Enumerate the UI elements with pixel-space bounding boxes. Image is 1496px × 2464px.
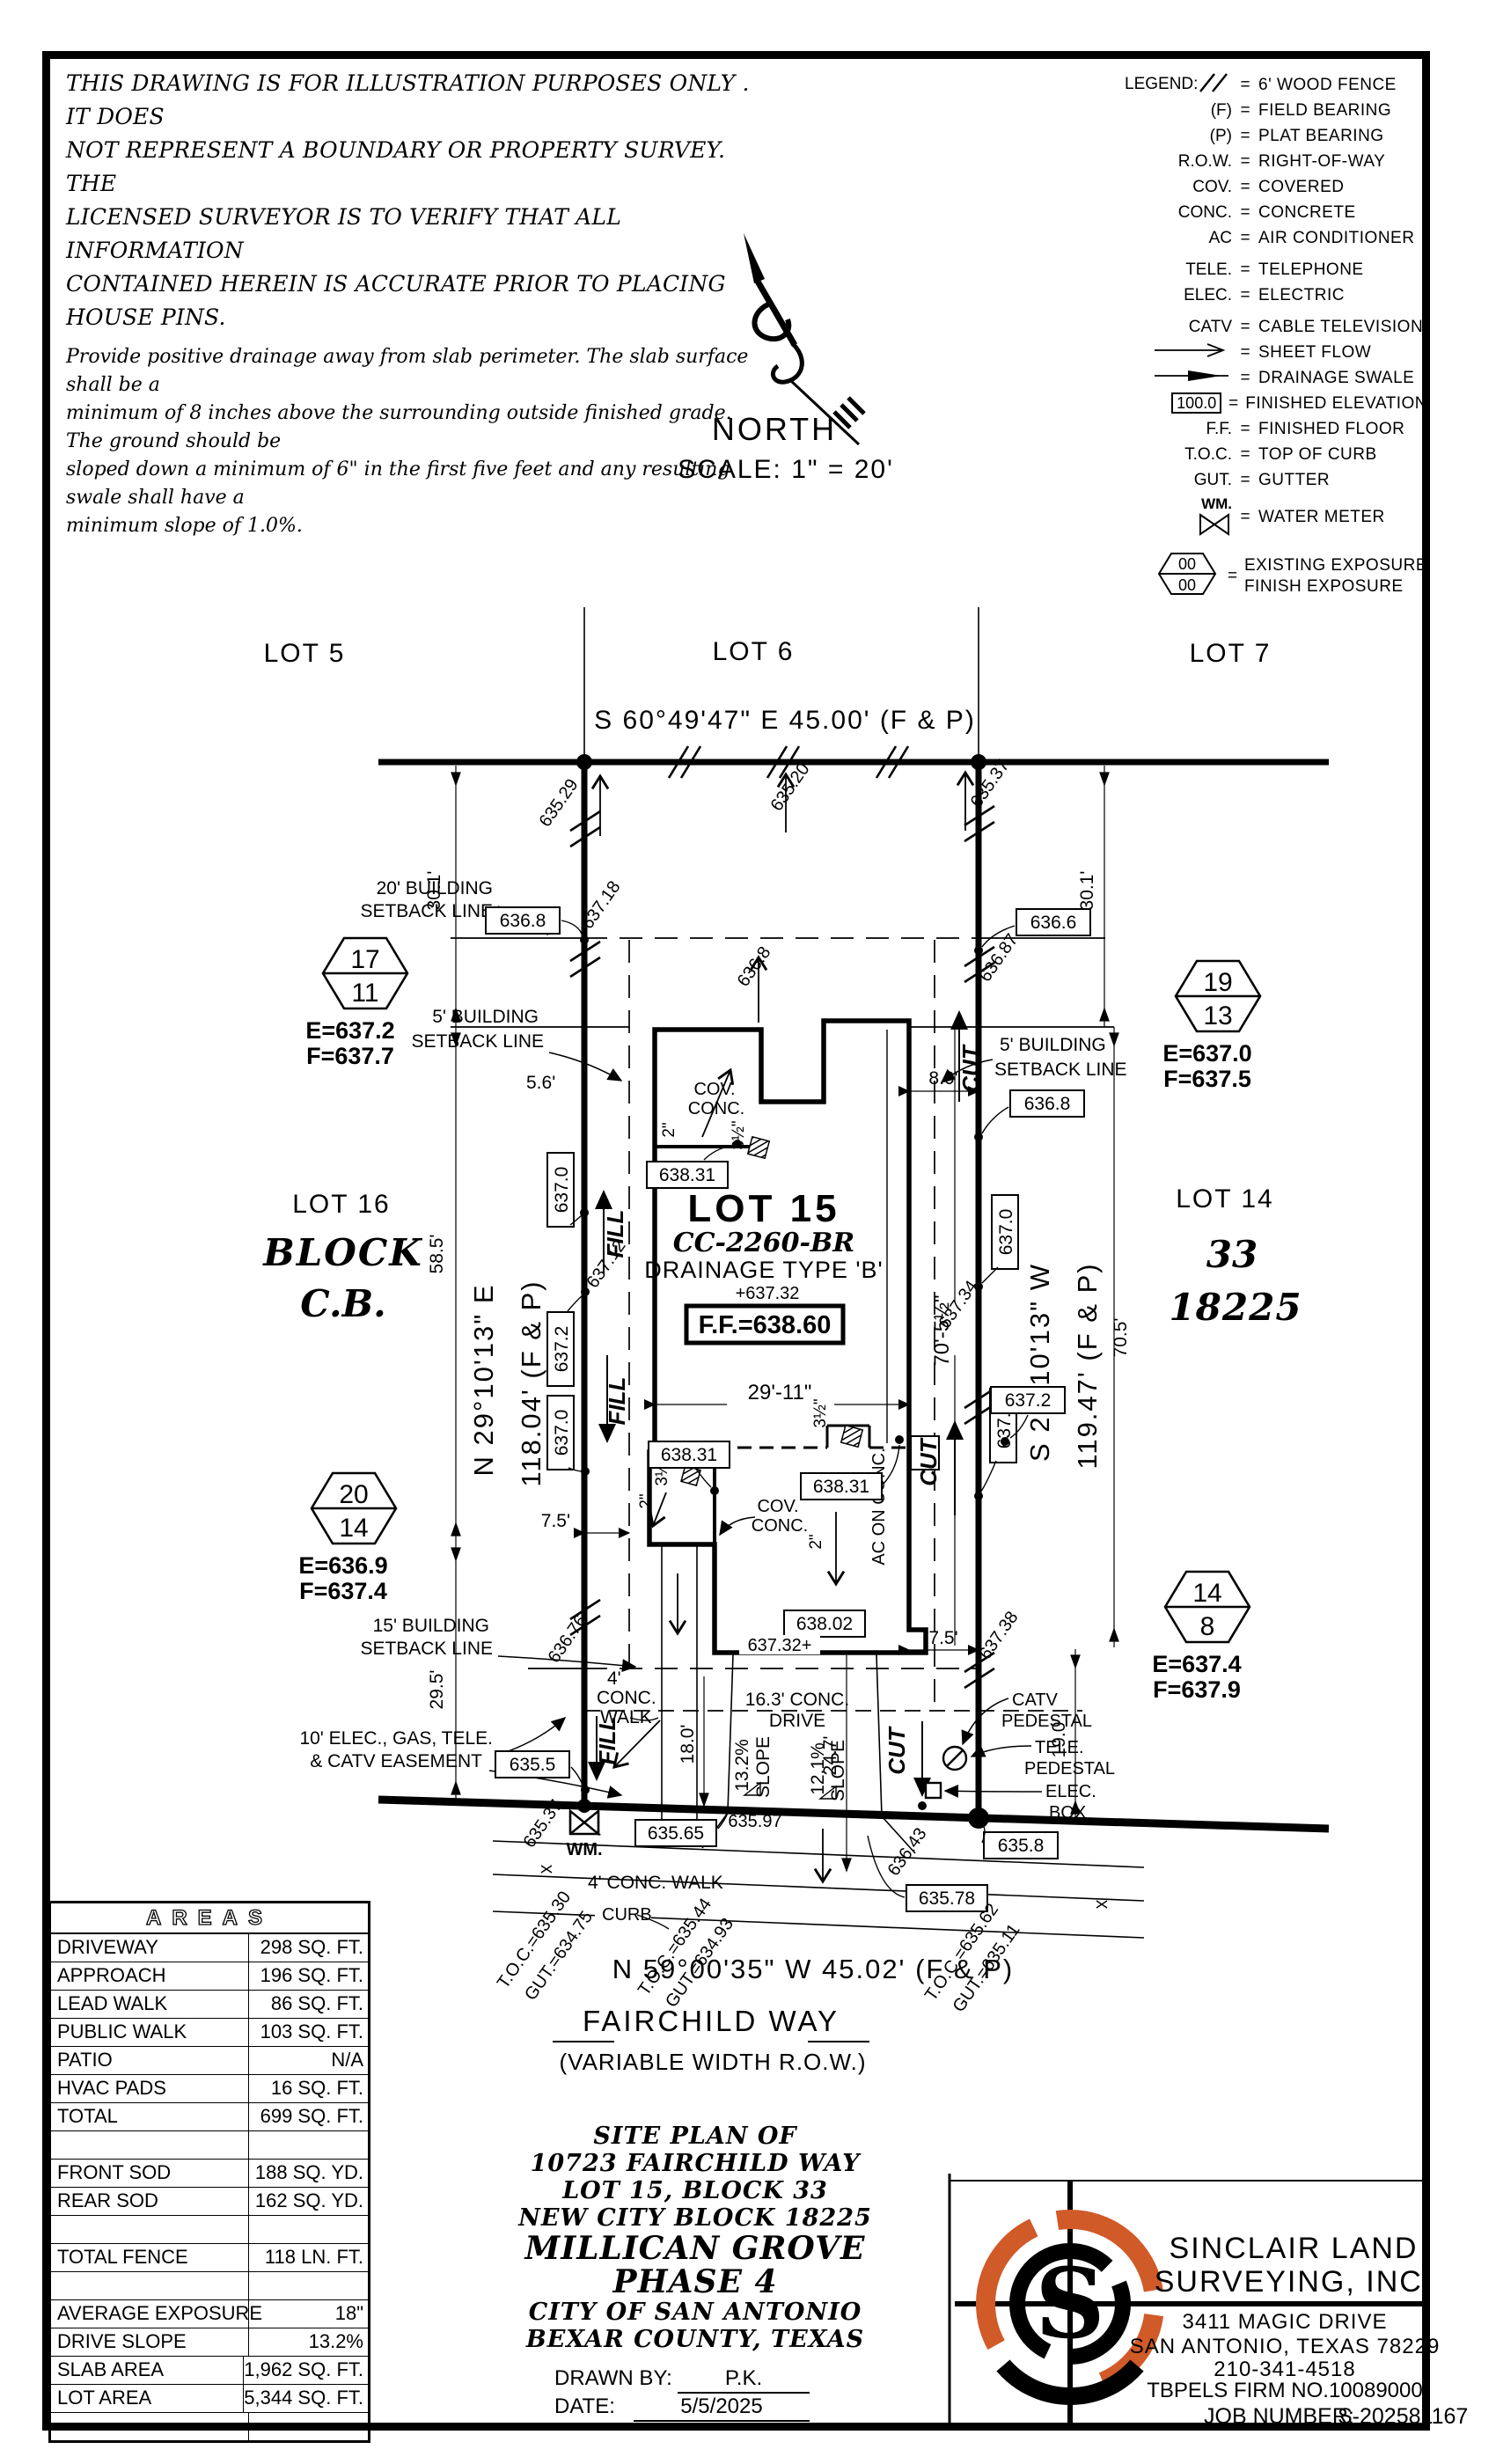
svg-text:58.5': 58.5' [427, 1235, 447, 1274]
svg-text:638.02: 638.02 [796, 1614, 853, 1634]
svg-text:637.0: 637.0 [552, 1167, 572, 1214]
svg-text:S 29°10'13" W: S 29°10'13" W [1024, 1263, 1055, 1462]
svg-text:SETBACK LINE: SETBACK LINE [994, 1060, 1127, 1080]
svg-text:30.1': 30.1' [1077, 871, 1097, 911]
svg-text:00: 00 [1178, 576, 1196, 594]
svg-text:C.B.: C.B. [300, 1282, 385, 1325]
company-addr-2: SAN ANTONIO, TEXAS 78229 [1130, 2335, 1441, 2358]
svg-text:PEDESTAL: PEDESTAL [1024, 1759, 1115, 1778]
title-line: NEW CITY BLOCK 18225 [488, 2204, 902, 2232]
legend: LEGEND: =6' WOOD FENCE (F)=FIELD BEARING… [1128, 72, 1427, 605]
svg-text:& CATV EASEMENT: & CATV EASEMENT [310, 1751, 482, 1771]
hex-14-8: 148 E=637.4 F=637.9 [1152, 1572, 1250, 1703]
date-value: 5/5/2025 [634, 2394, 810, 2422]
svg-text:5' BUILDING: 5' BUILDING [1000, 1035, 1106, 1055]
svg-text:635.8: 635.8 [998, 1836, 1045, 1856]
svg-text:635.65: 635.65 [648, 1823, 704, 1844]
drainage-type: DRAINAGE TYPE 'B' [644, 1257, 883, 1283]
water-meter-icon: WM. [1128, 497, 1232, 538]
exposure-hex-icon: 0000 [1128, 546, 1221, 606]
areas-table-title: AREAS [51, 1903, 368, 1934]
svg-text:2": 2" [637, 1493, 656, 1508]
svg-text:119.47' (F & P): 119.47' (F & P) [1072, 1262, 1103, 1469]
svg-text:20' BUILDING: 20' BUILDING [377, 878, 493, 898]
svg-text:2": 2" [807, 1534, 825, 1549]
svg-text:CURB: CURB [602, 1905, 652, 1925]
svg-text:17: 17 [350, 945, 379, 974]
elevation-boxes: 636.8 636.6 636.8 637.0 637.2 637.0 637.… [486, 907, 1090, 1911]
svg-text:CONC.: CONC. [597, 1688, 656, 1708]
svg-text:635.78: 635.78 [919, 1888, 975, 1909]
svg-text:635.97: 635.97 [728, 1812, 781, 1831]
company-addr-1: 3411 MAGIC DRIVE [1183, 2310, 1388, 2334]
flatwork-labels: 16.3' CONC. DRIVE 13.2% SLOPE 12.1% SLOP… [588, 1668, 849, 1929]
svg-text:635.29: 635.29 [536, 775, 583, 831]
disclaimer-line: LICENSED SURVEYOR IS TO VERIFY THAT ALL … [66, 201, 770, 268]
cov-conc-top-1: COV. [693, 1080, 735, 1099]
table-row: PUBLIC WALK103 SQ. FT. [51, 2019, 368, 2047]
svg-text:638.31: 638.31 [661, 1445, 717, 1465]
table-row: DRIVEWAY298 SQ. FT. [51, 1934, 368, 1962]
svg-text:BOX: BOX [1049, 1803, 1086, 1822]
svg-text:PEDESTAL: PEDESTAL [1001, 1712, 1092, 1731]
table-row: PATION/A [51, 2047, 368, 2075]
company-name-1: SINCLAIR LAND [1170, 2232, 1419, 2265]
legend-title: LEGEND: [1125, 75, 1198, 94]
finished-elevation-box: 100.0 [1171, 392, 1221, 414]
svg-text:CUT: CUT [915, 1437, 942, 1486]
cov-conc-bottom-2: CONC. [752, 1516, 808, 1536]
svg-text:637.2: 637.2 [552, 1326, 572, 1373]
svg-text:TELE.: TELE. [1035, 1738, 1084, 1757]
svg-text:CUT: CUT [884, 1726, 910, 1775]
svg-text:637.32+: 637.32+ [748, 1636, 812, 1655]
job-number-label: JOB NUMBER: [1204, 2404, 1354, 2429]
svg-text:636.43: 636.43 [884, 1824, 931, 1880]
svg-text:FILL: FILL [604, 1377, 630, 1426]
elec-box-icon [926, 1783, 941, 1798]
svg-text:637.2: 637.2 [1005, 1390, 1052, 1411]
svg-text:13: 13 [1203, 1001, 1232, 1030]
svg-text:CATV: CATV [1012, 1690, 1059, 1710]
svg-text:7.5': 7.5' [541, 1511, 570, 1531]
svg-text:E=637.4: E=637.4 [1152, 1651, 1241, 1677]
table-row: HVAC PADS16 SQ. FT. [51, 2075, 368, 2103]
svg-text:14: 14 [339, 1514, 368, 1543]
svg-text:636.6: 636.6 [1030, 913, 1077, 933]
svg-text:19: 19 [1203, 968, 1232, 997]
table-row: SLAB AREA1,962 SQ. FT. [51, 2357, 368, 2385]
svg-text:33: 33 [1206, 1233, 1258, 1276]
lot6-label: LOT 6 [713, 637, 795, 666]
svg-text:E=636.9: E=636.9 [298, 1552, 387, 1579]
lot7-label: LOT 7 [1190, 639, 1272, 668]
svg-text:637.0: 637.0 [552, 1410, 572, 1456]
svg-text:29'-11": 29'-11" [748, 1381, 812, 1404]
title-line: 10723 FAIRCHILD WAY [488, 2150, 902, 2177]
svg-text:3½": 3½" [811, 1398, 830, 1427]
svg-text:15' BUILDING: 15' BUILDING [373, 1616, 489, 1636]
company-firm: TBPELS FIRM NO.10089000 [1147, 2379, 1422, 2402]
svg-text:2": 2" [660, 1122, 678, 1137]
svg-text:DRIVE: DRIVE [769, 1711, 825, 1731]
ac-on-conc: AC ON CONC. [869, 1448, 889, 1565]
table-row [51, 2413, 368, 2440]
street-name: FAIRCHILD WAY [583, 2005, 840, 2037]
drawn-by-value: P.K. [678, 2365, 810, 2394]
table-row: TOTAL FENCE118 LN. FT. [51, 2244, 368, 2272]
job-number-value: S-202581167 [1338, 2404, 1468, 2429]
disclaimer-line: NOT REPRESENT A BOUNDARY OR PROPERTY SUR… [66, 134, 770, 201]
areas-table: AREAS DRIVEWAY298 SQ. FT. APPROACH196 SQ… [48, 1901, 370, 2443]
svg-text:20: 20 [339, 1480, 368, 1509]
svg-text:11: 11 [351, 979, 378, 1008]
subdivision-name: MILLICAN GROVE [488, 2232, 902, 2265]
svg-text:ELEC.: ELEC. [1045, 1782, 1096, 1801]
svg-text:SETBACK LINE: SETBACK LINE [360, 1639, 493, 1659]
disclaimer-line: CONTAINED HEREIN IS ACCURATE PRIOR TO PL… [66, 268, 770, 334]
svg-text:635.5: 635.5 [510, 1755, 556, 1775]
svg-text:636.8: 636.8 [734, 943, 775, 991]
svg-text:BLOCK: BLOCK [262, 1231, 423, 1274]
lot15-label: LOT 15 [687, 1187, 840, 1230]
svg-text:F=637.5: F=637.5 [1163, 1066, 1251, 1092]
drainage-swale-icon [1128, 369, 1232, 388]
drainage-note-line: Provide positive drainage away from slab… [66, 343, 770, 400]
svg-text:SETBACK LINE: SETBACK LINE [360, 901, 493, 921]
svg-text:4': 4' [607, 1668, 621, 1689]
table-row: LOT AREA5,344 SQ. FT. [51, 2385, 368, 2413]
hex-20-14: 2014 E=636.9 F=637.4 [298, 1473, 396, 1604]
lot5-label: LOT 5 [264, 639, 346, 668]
svg-text:637.0: 637.0 [996, 1209, 1016, 1256]
svg-text:CUT: CUT [957, 1044, 984, 1093]
svg-text:E=637.0: E=637.0 [1162, 1040, 1251, 1067]
svg-text:SETBACK LINE: SETBACK LINE [411, 1031, 544, 1052]
table-row: TOTAL699 SQ. FT. [51, 2103, 368, 2131]
top-bearing: S 60°49'47" E 45.00' (F & P) [594, 706, 976, 735]
drawn-by-label: DRAWN BY: [554, 2365, 678, 2394]
svg-text:S: S [1035, 2247, 1104, 2360]
svg-text:LOT 16: LOT 16 [292, 1190, 391, 1219]
table-row: DRIVE SLOPE13.2% [51, 2328, 368, 2357]
svg-text:E=637.2: E=637.2 [305, 1017, 394, 1044]
svg-text:5.6': 5.6' [526, 1073, 555, 1093]
svg-text:14: 14 [1192, 1579, 1221, 1608]
svg-text:N 29°10'13" E: N 29°10'13" E [468, 1283, 499, 1476]
date-label: DATE: [554, 2394, 634, 2422]
svg-text:10' ELEC., GAS, TELE.: 10' ELEC., GAS, TELE. [299, 1728, 493, 1749]
svg-text:18225: 18225 [1169, 1286, 1302, 1329]
svg-text:636.8: 636.8 [500, 911, 546, 931]
drainage-note-line: minimum slope of 1.0%. [66, 512, 770, 540]
svg-text:F=637.9: F=637.9 [1153, 1676, 1241, 1703]
svg-text:SLOPE: SLOPE [828, 1740, 848, 1801]
svg-text:F=637.4: F=637.4 [299, 1578, 387, 1604]
table-row: FRONT SOD188 SQ. YD. [51, 2160, 368, 2188]
company-name-2: SURVEYING, INC. [1155, 2265, 1434, 2299]
svg-text:636.8: 636.8 [1024, 1094, 1071, 1114]
sheet: NORTH SCALE: 1" = 20' LOT 5 LOT 6 LOT 7 … [0, 0, 1496, 2464]
company-block: S SINCLAIR LAND SURVEYING, INC. 3411 MAG… [950, 2174, 1468, 2429]
svg-text:70.5': 70.5' [1111, 1318, 1131, 1358]
title-line: LOT 15, BLOCK 33 [488, 2177, 902, 2204]
svg-text:118.04' (F & P): 118.04' (F & P) [516, 1280, 546, 1486]
svg-text:29.5': 29.5' [427, 1670, 447, 1710]
svg-text:8.0': 8.0' [928, 1068, 957, 1089]
row-note: (VARIABLE WIDTH R.O.W.) [560, 2049, 867, 2075]
table-row [51, 2216, 368, 2244]
svg-text:638.31: 638.31 [659, 1165, 715, 1185]
svg-text:4' CONC. WALK: 4' CONC. WALK [588, 1873, 723, 1893]
svg-text:WALK: WALK [600, 1707, 652, 1727]
wm-label: WM. [566, 1840, 602, 1859]
hex-17-11: 1711 E=637.2 F=637.7 [305, 938, 407, 1069]
svg-text:00: 00 [1178, 555, 1196, 573]
title-line: SITE PLAN OF [488, 2123, 902, 2150]
disclaimer-note: THIS DRAWING IS FOR ILLUSTRATION PURPOSE… [66, 67, 770, 540]
table-row: REAR SOD162 SQ. YD. [51, 2188, 368, 2216]
property-boundary [378, 607, 1329, 1829]
svg-text:13.2%: 13.2% [732, 1739, 752, 1792]
table-row: LEAD WALK86 SQ. FT. [51, 1991, 368, 2019]
disclaimer-line: THIS DRAWING IS FOR ILLUSTRATION PURPOSE… [66, 67, 770, 134]
table-row [51, 2131, 368, 2160]
svg-text:638.31: 638.31 [813, 1477, 869, 1497]
svg-text:5' BUILDING: 5' BUILDING [432, 1007, 539, 1027]
table-row: APPROACH196 SQ. FT. [51, 1962, 368, 1991]
hex-19-13: 1913 E=637.0 F=637.5 [1162, 961, 1260, 1092]
spot-63732-center: +637.32 [736, 1284, 800, 1303]
phase: PHASE 4 [488, 2265, 902, 2299]
svg-text:SLOPE: SLOPE [753, 1736, 774, 1798]
svg-text:LOT 14: LOT 14 [1176, 1184, 1274, 1214]
svg-text:8: 8 [1200, 1612, 1215, 1641]
table-row [51, 2272, 368, 2300]
title-line: BEXAR COUNTY, TEXAS [488, 2326, 902, 2353]
title-line: CITY OF SAN ANTONIO [488, 2299, 902, 2326]
cov-conc-bottom-1: COV. [757, 1497, 798, 1516]
finished-floor: F.F.=638.60 [699, 1311, 832, 1339]
svg-text:16.3' CONC.: 16.3' CONC. [745, 1690, 849, 1710]
svg-text:7.5': 7.5' [928, 1628, 957, 1648]
sheet-flow-icon [1128, 342, 1232, 363]
svg-text:12.1%: 12.1% [808, 1742, 828, 1795]
svg-text:637.38: 637.38 [976, 1608, 1023, 1663]
svg-text:18.0': 18.0' [678, 1725, 698, 1764]
drainage-note-line: minimum of 8 inches above the surroundin… [66, 400, 770, 456]
svg-text:F=637.7: F=637.7 [306, 1043, 394, 1069]
drainage-note-line: sloped down a minimum of 6" in the first… [66, 456, 770, 512]
title-block: SITE PLAN OF 10723 FAIRCHILD WAY LOT 15,… [488, 2123, 902, 2422]
company-phone: 210-341-4518 [1214, 2358, 1355, 2381]
table-row: AVERAGE EXPOSURE18" [51, 2300, 368, 2328]
plan-number: CC-2260-BR [673, 1228, 854, 1258]
